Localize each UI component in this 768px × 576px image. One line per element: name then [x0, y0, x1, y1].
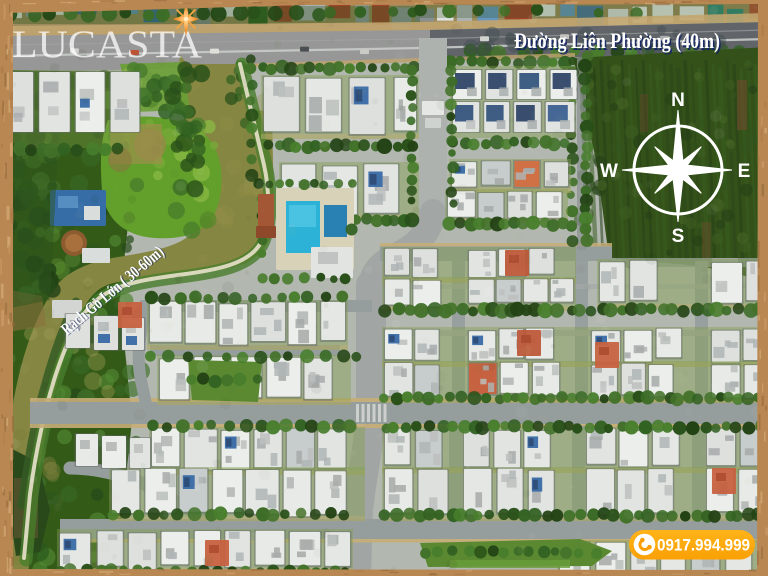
svg-text:S: S: [672, 226, 685, 247]
svg-text:LUCASTA: LUCASTA: [12, 23, 202, 66]
svg-text:W: W: [600, 161, 618, 182]
svg-text:Đường Liên Phường (40m): Đường Liên Phường (40m): [514, 28, 720, 53]
svg-text:E: E: [738, 161, 751, 182]
svg-text:N: N: [671, 90, 685, 111]
svg-text:0917.994.999: 0917.994.999: [657, 537, 750, 555]
